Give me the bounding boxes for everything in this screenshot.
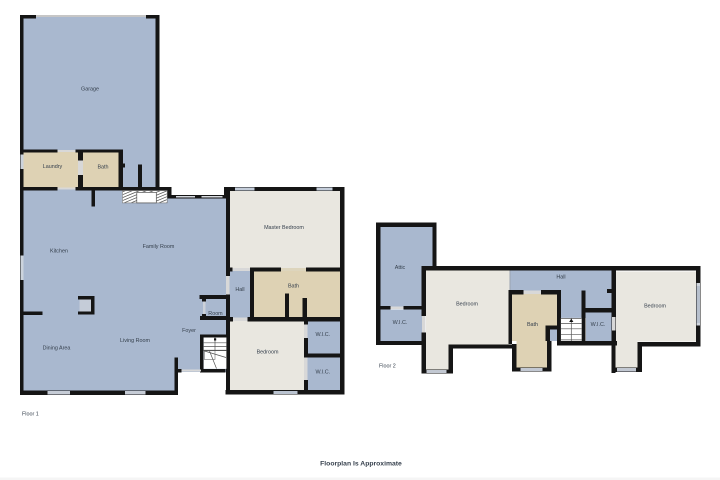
svg-text:Bath: Bath — [527, 322, 538, 328]
svg-text:Room: Room — [208, 311, 223, 317]
svg-text:Hall: Hall — [235, 287, 244, 293]
svg-text:Bath: Bath — [288, 284, 299, 290]
svg-text:Attic: Attic — [395, 265, 406, 271]
svg-text:Garage: Garage — [81, 87, 99, 93]
svg-text:Bedroom: Bedroom — [257, 350, 279, 356]
svg-text:Hall: Hall — [556, 274, 565, 280]
svg-text:W.I.C.: W.I.C. — [315, 369, 330, 375]
svg-text:Dining Area: Dining Area — [43, 345, 71, 351]
svg-text:Bath: Bath — [97, 165, 108, 171]
svg-text:Kitchen: Kitchen — [50, 249, 68, 255]
svg-text:W.I.C.: W.I.C. — [315, 332, 330, 338]
svg-text:Laundry: Laundry — [43, 164, 63, 170]
svg-text:Foyer: Foyer — [182, 328, 196, 334]
svg-text:Bedroom: Bedroom — [644, 303, 666, 309]
svg-text:Floor 1: Floor 1 — [22, 412, 39, 418]
svg-text:Master Bedroom: Master Bedroom — [264, 225, 304, 231]
svg-text:Living Room: Living Room — [120, 338, 150, 344]
svg-text:W.I.C.: W.I.C. — [393, 320, 408, 326]
svg-text:W.I.C.: W.I.C. — [591, 322, 606, 328]
svg-text:Floor 2: Floor 2 — [379, 363, 396, 369]
svg-text:Floorplan Is Approximate: Floorplan Is Approximate — [320, 460, 402, 467]
svg-text:Bedroom: Bedroom — [456, 301, 478, 307]
svg-text:Family Room: Family Room — [143, 244, 175, 250]
